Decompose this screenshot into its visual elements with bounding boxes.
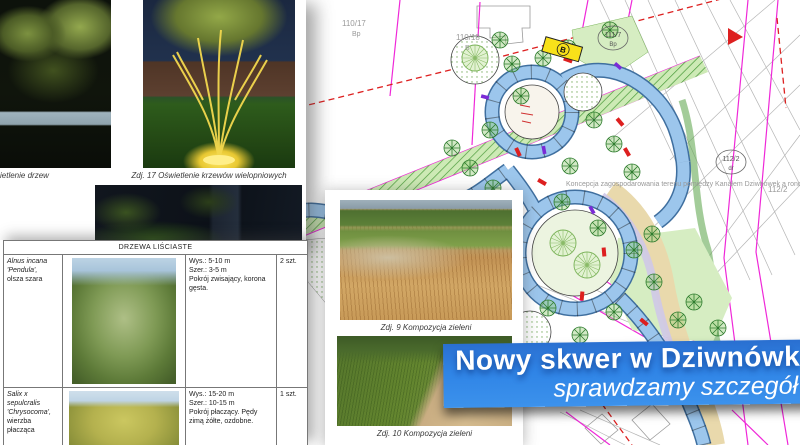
deciduous-trees-table: DRZEWA LIŚCIASTE Alnus incana 'Pendula',… (3, 240, 308, 445)
parcel-110-17-type: Bp (352, 31, 361, 38)
width-spec: Szer.: 3-5 m (189, 266, 273, 275)
collage-canvas: B 110/17 Bp 110/18 B 111/7 Bp 112/2 dr 1… (0, 0, 800, 445)
caption-tree-lighting: ietlenie drzew (0, 171, 105, 180)
photo-salix (69, 391, 179, 445)
photo-cell (63, 388, 186, 445)
height-spec: Wys.: 15-20 m (189, 390, 273, 399)
photo-multistem-shrub-lighting (143, 0, 295, 168)
species-polish: olsza szara (7, 275, 59, 284)
parcel-112-2-circle: 112/2 (723, 156, 740, 163)
parcel-110-18: 110/18 (456, 33, 480, 42)
photo-cell (63, 255, 186, 388)
headline-subtitle: sprawdzamy szczegół (553, 372, 798, 404)
photo-alnus (72, 258, 176, 384)
parcel-112-2-type: dr (728, 166, 733, 172)
parcel-111-7-type: Bp (609, 42, 617, 48)
species-latin: Salix x sepulcralis (7, 390, 59, 408)
table-header-row: DRZEWA LIŚCIASTE (4, 241, 308, 255)
circular-plaza-1 (505, 85, 559, 139)
caption-greenery-9: Zdj. 9 Kompozycja zieleni (340, 323, 512, 332)
height-spec: Wys.: 5-10 m (189, 257, 273, 266)
circular-bed-2 (564, 73, 602, 111)
trees-table-page: DRZEWA LIŚCIASTE Alnus incana 'Pendula',… (0, 240, 308, 445)
photo-greenery-composition-9 (340, 200, 512, 320)
headline-banner: Nowy skwer w Dziwnówk sprawdzamy szczegó… (443, 339, 800, 408)
table-title: DRZEWA LIŚCIASTE (4, 241, 308, 255)
habit-spec: Pokrój zwisający, korona gęsta. (189, 275, 273, 293)
species-cell: Salix x sepulcralis 'Chrysocoma', wierzb… (4, 388, 63, 445)
species-polish: wierzba płacząca (7, 417, 59, 435)
parcel-111-7: 111/7 (605, 32, 622, 39)
parcel-110-17: 110/17 (342, 19, 366, 28)
table-row: Alnus incana 'Pendula', olsza szara Wys.… (4, 255, 308, 388)
photo-tree-lighting (0, 0, 111, 168)
width-spec: Szer.: 10-15 m (189, 399, 273, 408)
caption-shrub-lighting: Zdj. 17 Oświetlenie krzewów wielopniowyc… (115, 171, 303, 180)
quantity-cell: 1 szt. (277, 388, 308, 445)
lit-branches-graphic (143, 0, 295, 168)
photo-night-garden (95, 185, 302, 246)
species-cultivar: 'Chrysocoma', (7, 408, 59, 417)
table-row: Salix x sepulcralis 'Chrysocoma', wierzb… (4, 388, 308, 445)
species-latin: Alnus incana (7, 257, 59, 266)
description-cell: Wys.: 15-20 m Szer.: 10-15 m Pokrój płac… (186, 388, 277, 445)
species-cultivar: 'Pendula', (7, 266, 59, 275)
quantity-cell: 2 szt. (277, 255, 308, 388)
lighting-photos-page: ietlenie drzew Zdj. 17 Oświetlenie krzew… (0, 0, 306, 246)
description-cell: Wys.: 5-10 m Szer.: 3-5 m Pokrój zwisają… (186, 255, 277, 388)
plan-caption: Koncepcja zagospodarowania terenu pomięd… (566, 181, 800, 188)
caption-greenery-10: Zdj. 10 Kompozycja zieleni (337, 429, 512, 438)
species-cell: Alnus incana 'Pendula', olsza szara (4, 255, 63, 388)
parcel-110-18-type: B (465, 45, 470, 52)
habit-spec: Pokrój płaczący. Pędy zimą żółte, ozdobn… (189, 408, 273, 426)
